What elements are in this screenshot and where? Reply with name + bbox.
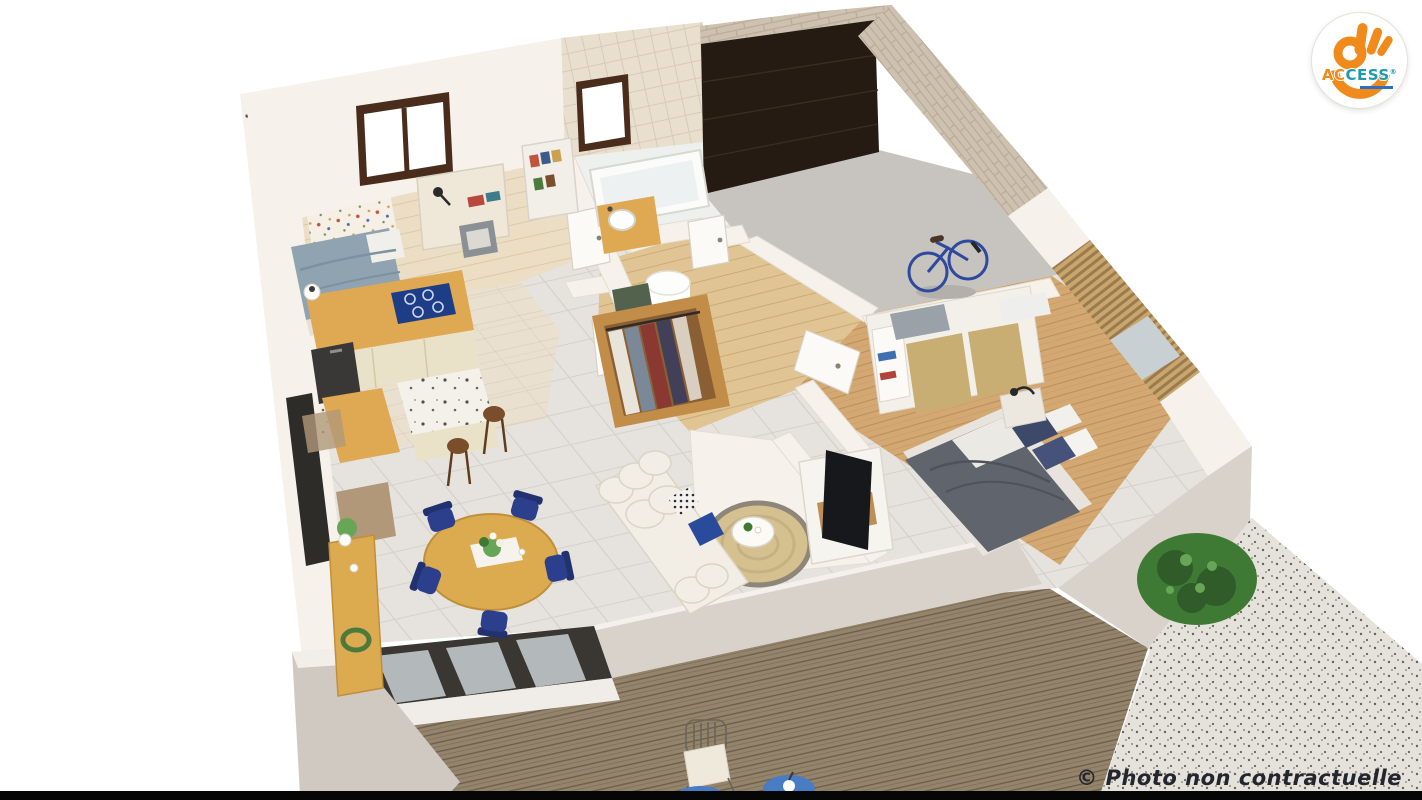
washbasin — [597, 196, 661, 254]
door-mat — [302, 409, 346, 453]
logo-underline — [1360, 86, 1393, 89]
bush-plant — [1137, 533, 1257, 625]
coffee-table — [732, 517, 774, 547]
photo-disclaimer-watermark: © Photo non contractuelle — [1076, 766, 1402, 790]
floorplan-scene — [0, 0, 1422, 800]
door — [688, 215, 729, 269]
window-bedroom — [356, 92, 453, 186]
console-table — [329, 518, 383, 696]
window-bathroom — [576, 74, 631, 152]
open-wardrobe — [592, 294, 730, 428]
bottom-black-bar — [0, 791, 1422, 800]
coffee-machine — [304, 284, 320, 300]
logo-wordmark: ACCESS® — [1312, 66, 1407, 84]
ladder-shelf — [522, 138, 578, 220]
rendered-floorplan-photo: © Photo non contractuelle ACCESS® — [0, 0, 1422, 800]
access-logo-badge: ACCESS® — [1312, 13, 1407, 108]
ok-hand-icon — [1312, 13, 1407, 108]
tv — [822, 450, 872, 550]
desk-chair — [459, 220, 498, 258]
